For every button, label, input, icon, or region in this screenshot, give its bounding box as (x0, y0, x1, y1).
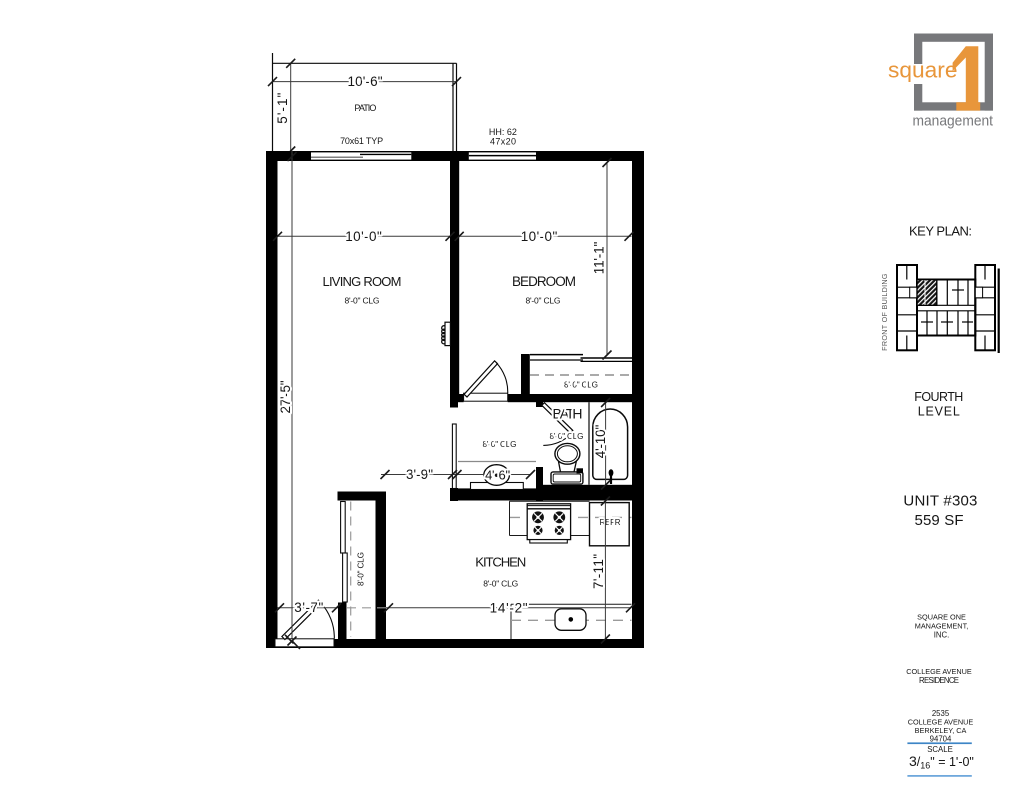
svg-text:SQUARE ONE: SQUARE ONE (917, 612, 966, 621)
svg-text:MANAGEMENT,: MANAGEMENT, (915, 621, 969, 630)
svg-text:square: square (888, 58, 958, 83)
svg-text:BATH: BATH (553, 405, 583, 421)
svg-text:10'-6": 10'-6" (348, 74, 383, 89)
svg-text:94704: 94704 (930, 734, 952, 743)
svg-text:559 SF: 559 SF (915, 512, 964, 529)
svg-text:7'-11": 7'-11" (591, 554, 606, 589)
svg-text:RESIDENCE: RESIDENCE (919, 676, 959, 685)
svg-text:27'-5": 27'-5" (278, 380, 293, 413)
svg-text:8'-0" CLG: 8'-0" CLG (357, 552, 366, 586)
svg-text:UNIT #303: UNIT #303 (903, 492, 977, 509)
svg-text:SCALE: SCALE (927, 745, 953, 754)
svg-text:management: management (913, 112, 994, 129)
svg-text:LIVING ROOM: LIVING ROOM (323, 274, 402, 289)
svg-text:8'-0" CLG: 8'-0" CLG (483, 440, 517, 449)
svg-text:8'-0" CLG: 8'-0" CLG (483, 578, 518, 588)
svg-text:PATIO: PATIO (354, 103, 376, 113)
svg-text:70x61 TYP: 70x61 TYP (340, 136, 383, 146)
svg-text:8'-0" CLG: 8'-0" CLG (526, 296, 561, 306)
svg-text:LEVEL: LEVEL (918, 405, 960, 419)
svg-text:10'-0": 10'-0" (521, 229, 558, 244)
svg-text:KITCHEN: KITCHEN (475, 555, 526, 570)
svg-text:47x20: 47x20 (490, 137, 516, 147)
svg-text:3'-9": 3'-9" (406, 467, 433, 482)
svg-text:REFR: REFR (600, 518, 621, 527)
svg-text:8'-0" CLG: 8'-0" CLG (564, 380, 598, 389)
svg-text:INC.: INC. (934, 630, 950, 639)
svg-text:11'-1": 11'-1" (592, 242, 607, 275)
svg-text:8'-0" CLG: 8'-0" CLG (550, 432, 584, 441)
svg-text:COLLEGE AVENUE: COLLEGE AVENUE (908, 717, 974, 726)
svg-text:5'-1": 5'-1" (275, 92, 290, 123)
svg-text:3'-7": 3'-7" (294, 600, 323, 615)
svg-text:FOURTH: FOURTH (914, 390, 963, 404)
svg-text:BEDROOM: BEDROOM (512, 274, 576, 289)
svg-text:3/16" = 1'-0": 3/16" = 1'-0" (909, 753, 974, 771)
svg-text:COLLEGE AVENUE: COLLEGE AVENUE (906, 667, 972, 676)
svg-text:8'-0" CLG: 8'-0" CLG (345, 296, 380, 306)
svg-text:FRONT OF BUILDING: FRONT OF BUILDING (880, 273, 889, 351)
svg-text:KEY PLAN:: KEY PLAN: (909, 223, 972, 238)
svg-text:4'-10": 4'-10" (593, 425, 608, 459)
svg-text:4'•6": 4'•6" (485, 468, 510, 483)
svg-text:14'-2": 14'-2" (490, 600, 528, 615)
svg-text:10'-0": 10'-0" (345, 229, 382, 244)
